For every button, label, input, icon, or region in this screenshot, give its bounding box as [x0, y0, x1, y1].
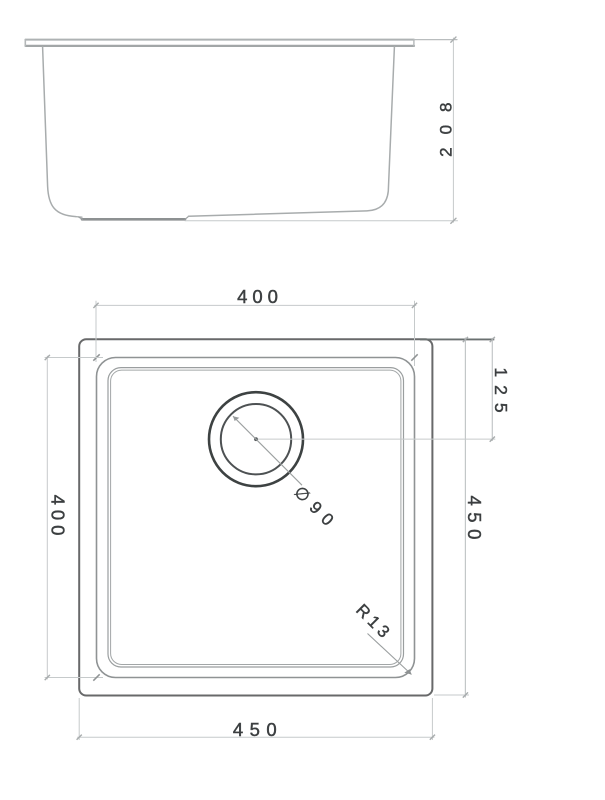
svg-text:125: 125 [491, 367, 511, 420]
svg-text:400: 400 [237, 286, 283, 307]
svg-text:450: 450 [464, 496, 485, 546]
svg-text:450: 450 [233, 719, 283, 740]
svg-text:208: 208 [437, 90, 456, 157]
svg-text:400: 400 [48, 495, 69, 541]
